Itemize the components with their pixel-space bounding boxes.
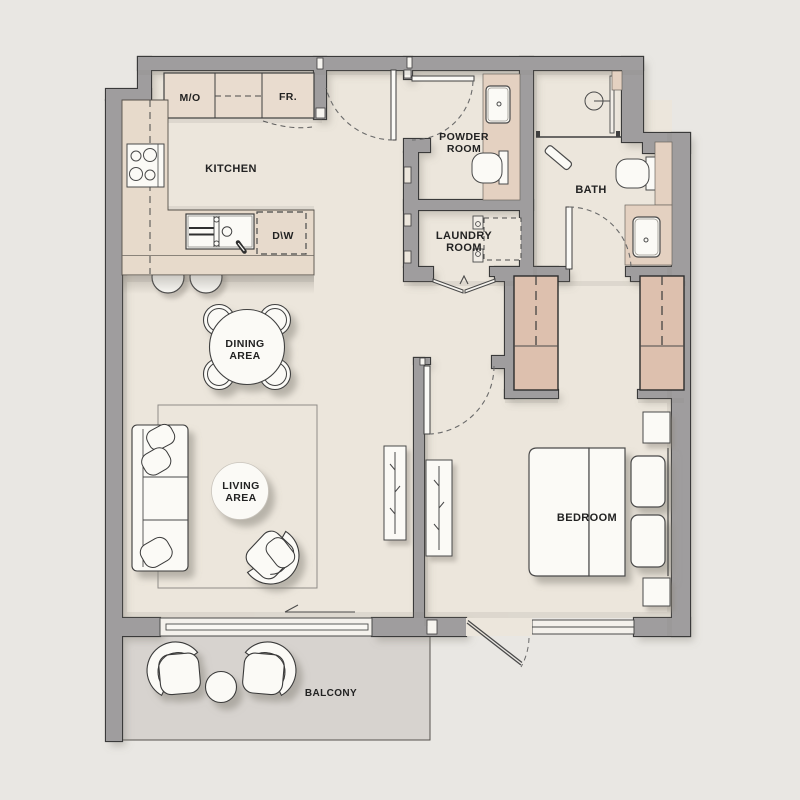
svg-text:BATH: BATH	[575, 184, 606, 196]
svg-text:D\W: D\W	[272, 230, 294, 242]
svg-text:LAUNDRY: LAUNDRY	[436, 230, 492, 242]
svg-text:BEDROOM: BEDROOM	[557, 512, 617, 524]
svg-text:FR.: FR.	[279, 91, 297, 103]
svg-text:BALCONY: BALCONY	[305, 688, 357, 699]
svg-text:M/O: M/O	[179, 92, 200, 104]
svg-text:AREA: AREA	[225, 492, 256, 504]
svg-text:ROOM: ROOM	[447, 143, 481, 155]
svg-text:DINING: DINING	[225, 338, 264, 350]
svg-text:AREA: AREA	[229, 350, 260, 362]
svg-text:KITCHEN: KITCHEN	[205, 163, 257, 175]
svg-text:ROOM: ROOM	[446, 242, 482, 254]
svg-text:POWDER: POWDER	[439, 131, 489, 143]
svg-text:LIVING: LIVING	[222, 480, 259, 492]
